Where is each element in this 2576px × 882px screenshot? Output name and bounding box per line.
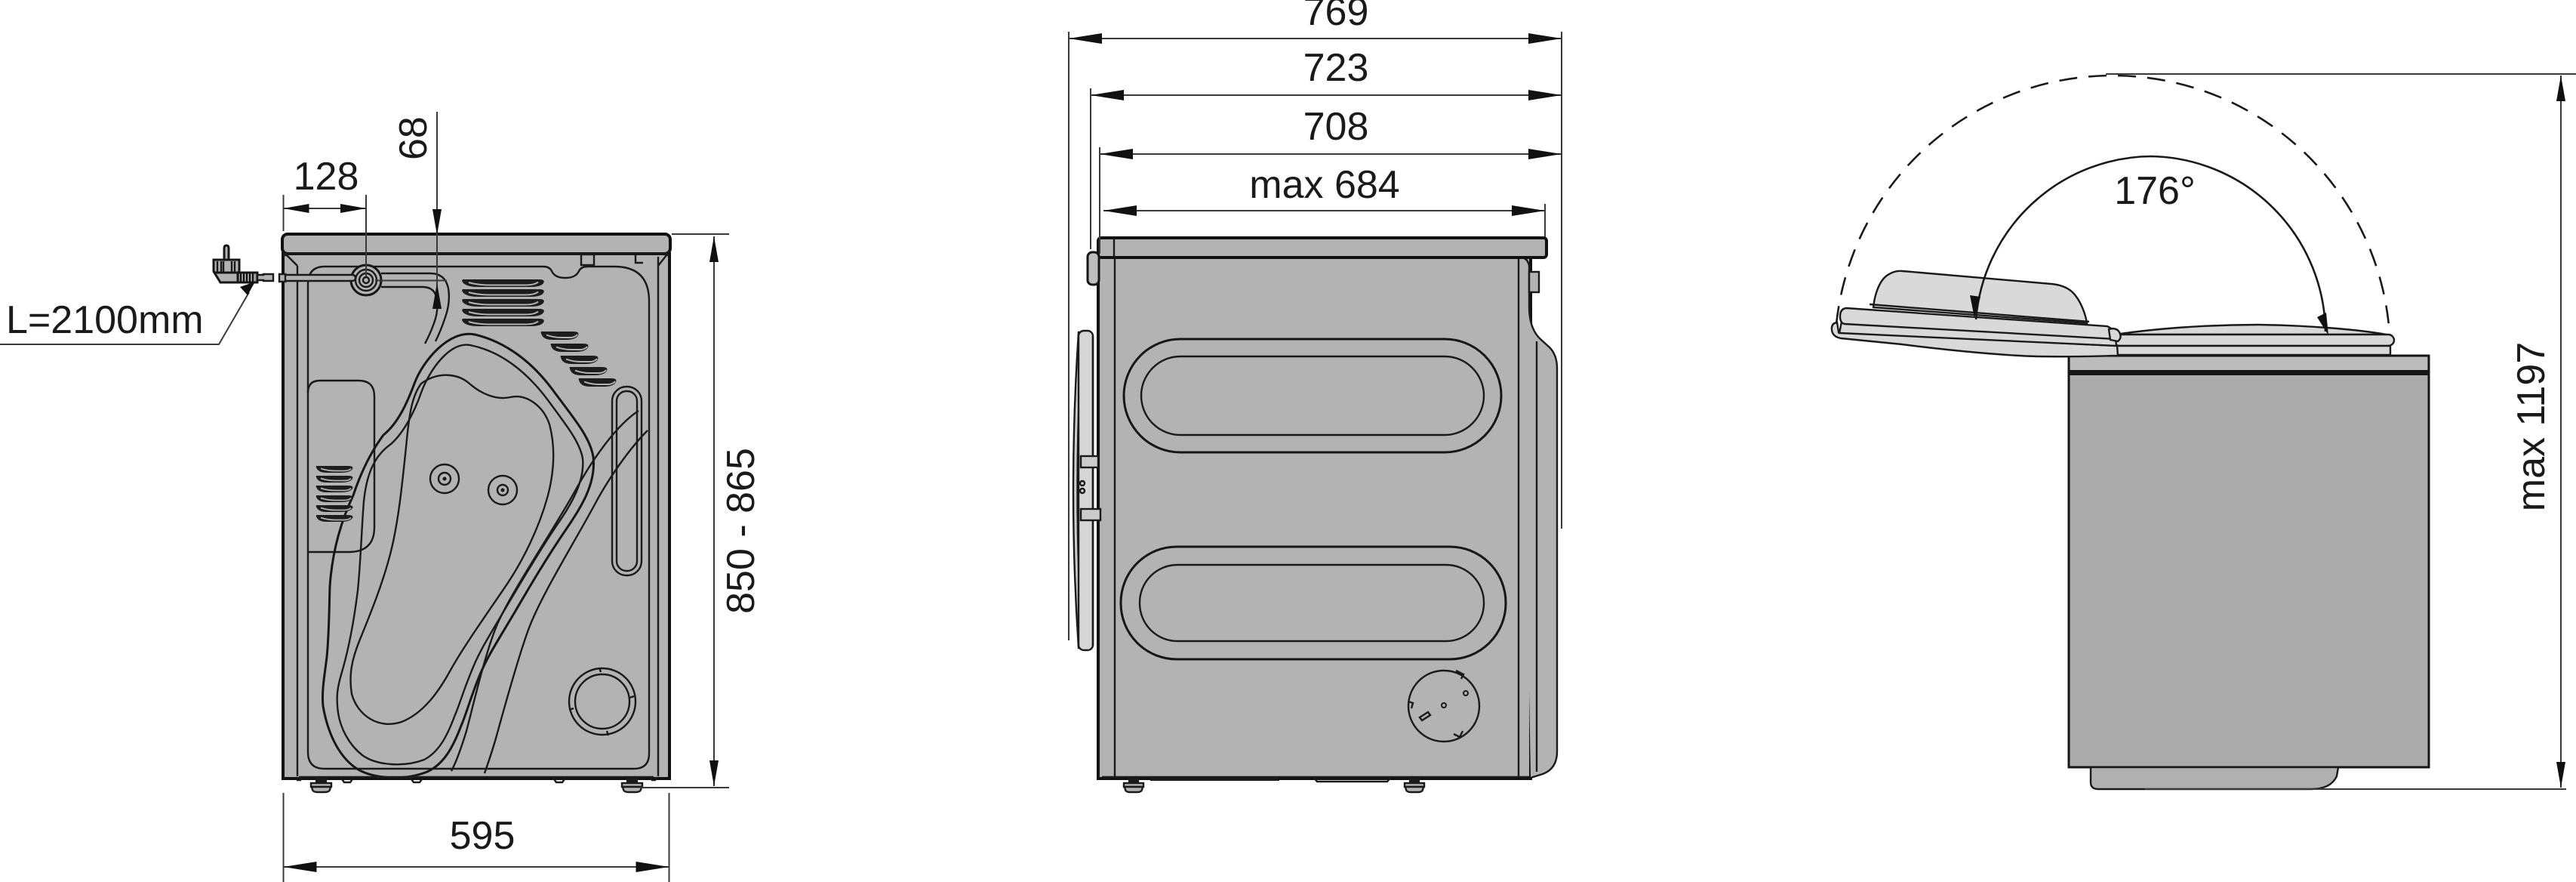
svg-text:708: 708 — [1303, 105, 1369, 149]
svg-text:L=2100mm: L=2100mm — [6, 298, 204, 342]
svg-text:769: 769 — [1303, 0, 1369, 34]
svg-text:176°: 176° — [2114, 169, 2196, 213]
svg-text:595: 595 — [450, 814, 516, 858]
svg-text:128: 128 — [294, 155, 359, 199]
svg-text:max 684: max 684 — [1249, 163, 1399, 207]
svg-text:723: 723 — [1303, 46, 1369, 90]
svg-text:max 1197: max 1197 — [2510, 342, 2553, 512]
svg-text:68: 68 — [392, 116, 435, 160]
svg-text:850 - 865: 850 - 865 — [719, 448, 763, 614]
